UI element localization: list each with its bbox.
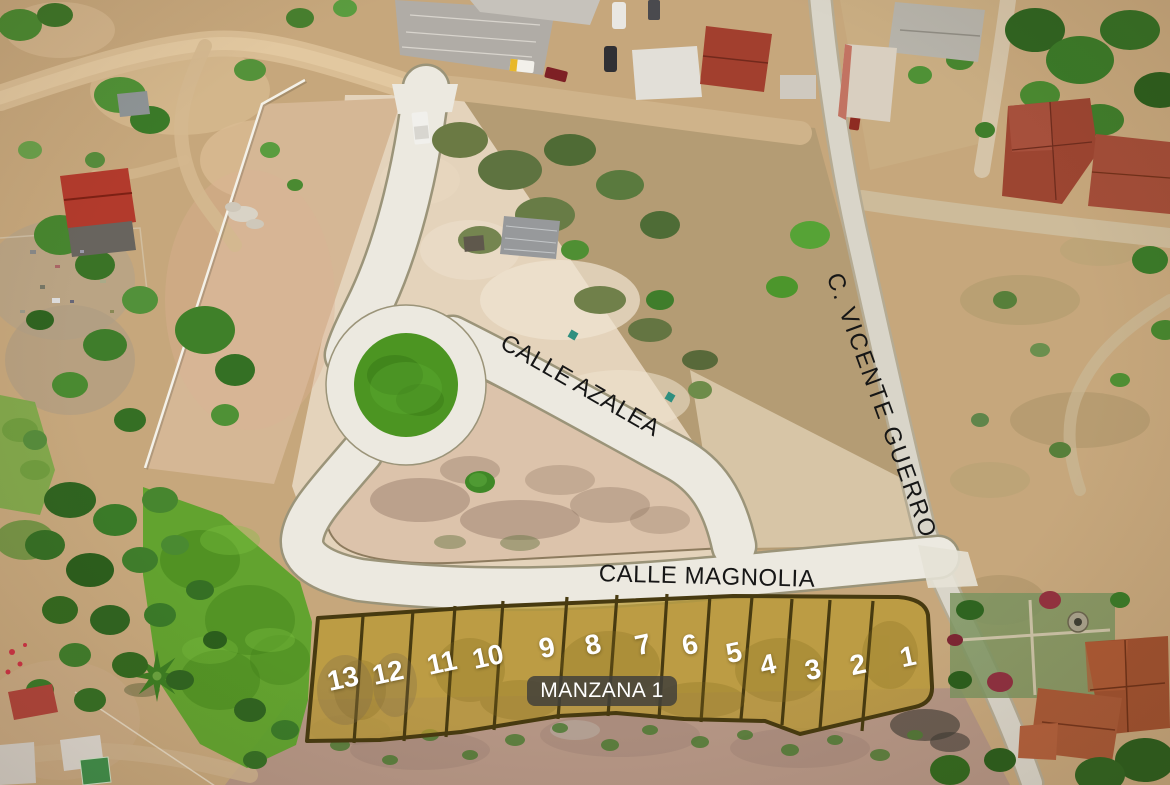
roundabout-green: [354, 333, 458, 437]
street-label-calle-magnolia: CALLE MAGNOLIA: [598, 560, 815, 594]
lot-number-13: 13: [324, 660, 361, 698]
lot-number-10: 10: [469, 638, 506, 676]
entry-flare: [392, 84, 458, 114]
lot-number-12: 12: [369, 654, 406, 692]
lone-bush: [465, 471, 495, 493]
aerial-lot-map: CALLE AZALEA CALLE MAGNOLIA C. VICENTE G…: [0, 0, 1170, 785]
pickup-entry-road: [411, 111, 430, 144]
manzana-badge: MANZANA 1: [527, 676, 677, 706]
lot-number-11: 11: [424, 644, 460, 681]
